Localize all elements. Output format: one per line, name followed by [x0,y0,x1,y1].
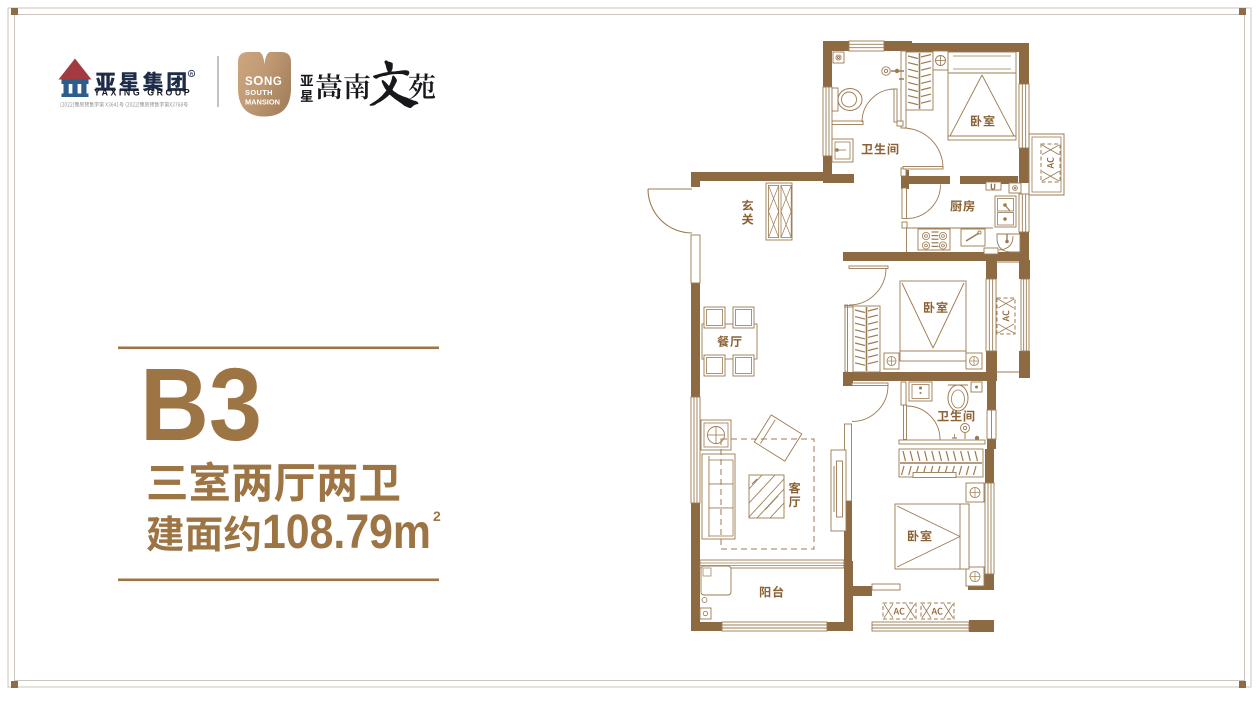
svg-text:SONG: SONG [245,73,282,88]
svg-text:108.79m: 108.79m [262,506,431,559]
svg-text:YAXING GROUP: YAXING GROUP [94,88,192,98]
svg-text:2: 2 [433,508,441,524]
svg-text:SOUTH: SOUTH [245,88,273,97]
svg-text:MANSION: MANSION [245,98,280,107]
svg-text:B3: B3 [140,347,262,462]
